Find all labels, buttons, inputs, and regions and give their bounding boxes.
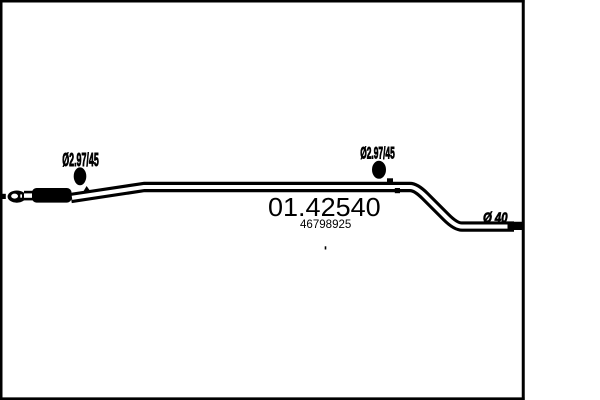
svg-text:Ø 40: Ø 40 bbox=[483, 209, 508, 226]
svg-text:46798925: 46798925 bbox=[300, 217, 352, 231]
svg-text:Ø2.97/45: Ø2.97/45 bbox=[360, 143, 395, 162]
